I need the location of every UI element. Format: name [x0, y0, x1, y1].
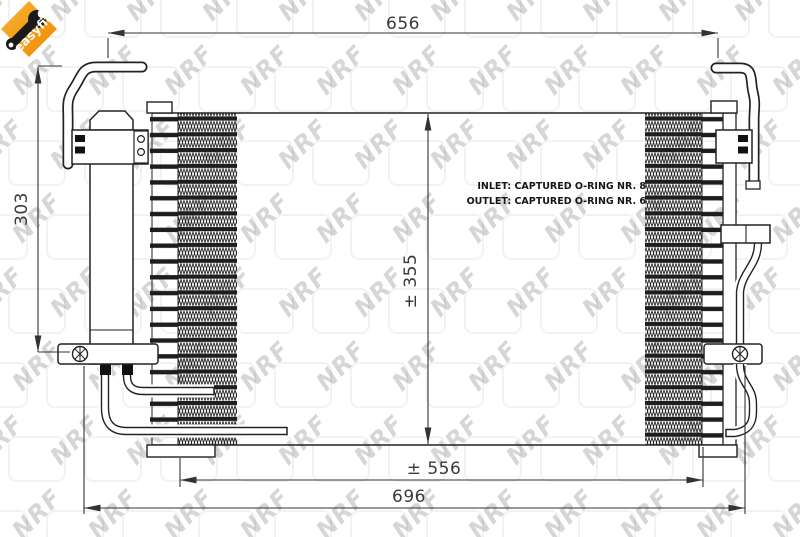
note-outlet: OUTLET: CAPTURED O-RING NR. 6 [467, 196, 647, 207]
right-pipe-upper [740, 243, 758, 344]
dimension-bottom-inner-label: ± 556 [407, 459, 462, 479]
pipe-fitting-right [122, 364, 133, 375]
condenser-core [150, 113, 737, 445]
condenser-technical-drawing: 656 303 ± 355 ± 556 696 INLET: CAPTURED … [0, 0, 800, 537]
pipe-fitting-left [100, 364, 111, 375]
condenser-drawing-page: NRFNRFNRFNRFNRFNRFNRFNRFNRFNRFNRFNRFNRFN… [0, 0, 800, 537]
port-inlet [75, 135, 85, 142]
port-outlet [75, 147, 85, 154]
dimension-bottom-outer-label: 696 [392, 487, 426, 507]
note-inlet: INLET: CAPTURED O-RING NR. 8 [477, 181, 646, 192]
dimension-core-height-label: ± 355 [401, 254, 421, 309]
dimension-lines [38, 33, 745, 514]
easyfit-badge: easyfit [0, 0, 70, 70]
dimension-top-width-label: 656 [386, 14, 420, 34]
dimension-left-height-label: 303 [12, 192, 32, 226]
